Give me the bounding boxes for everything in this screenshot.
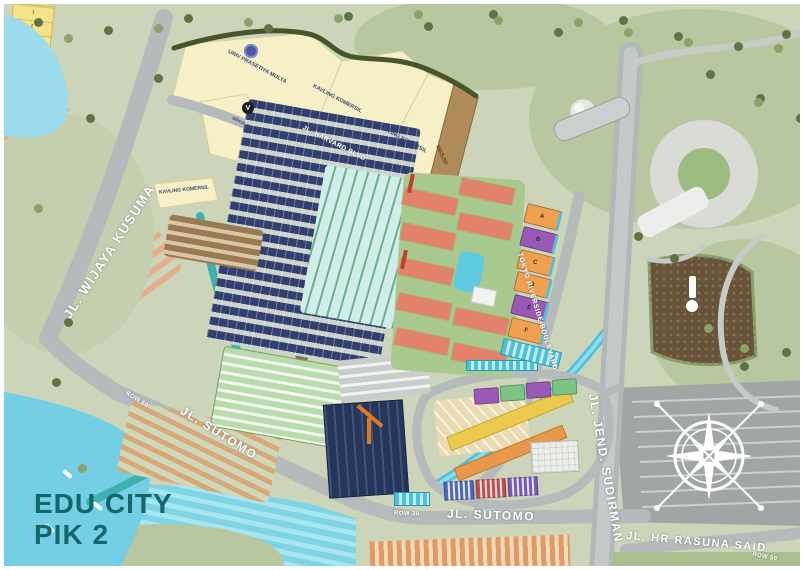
rowhouse-strip-bottom	[369, 535, 570, 570]
shop-block	[473, 387, 499, 405]
tree-dots-dark	[34, 18, 43, 27]
block-letter: C	[532, 259, 538, 266]
shophouse-row	[508, 476, 539, 497]
shophouse-row	[476, 478, 507, 499]
block-letter: A	[539, 213, 545, 220]
row-label-30-bottom: ROW 30	[394, 511, 420, 518]
block-letter: B	[535, 236, 541, 243]
pond-topleft	[4, 14, 68, 137]
map-title-line2: PIK 2	[34, 519, 173, 550]
shop-block	[551, 378, 577, 396]
monument-tower	[689, 276, 696, 298]
compass-rose-icon	[655, 402, 764, 511]
school-logo-icon: V	[242, 102, 254, 114]
bazaar-texture	[649, 255, 756, 365]
block-letter: F	[524, 327, 529, 334]
mall-building	[530, 440, 580, 474]
map-title: EDU CITY PIK 2	[34, 488, 173, 551]
university-logo-icon	[244, 44, 258, 58]
shophouse-row	[444, 480, 475, 501]
map-title-line1: EDU CITY	[34, 488, 173, 519]
construction-crane-mast	[367, 418, 371, 444]
site-plan-map: 1 2 3 4 5 6 7 8 9 10 11 12 A B C D E F V…	[0, 0, 804, 570]
tree-dots-light	[64, 34, 73, 43]
shop-block	[499, 384, 525, 402]
shop-block	[525, 381, 551, 399]
shophouse-teal-row	[394, 492, 430, 506]
monument-plaza	[686, 300, 698, 312]
shophouse-teal-row	[466, 360, 538, 371]
